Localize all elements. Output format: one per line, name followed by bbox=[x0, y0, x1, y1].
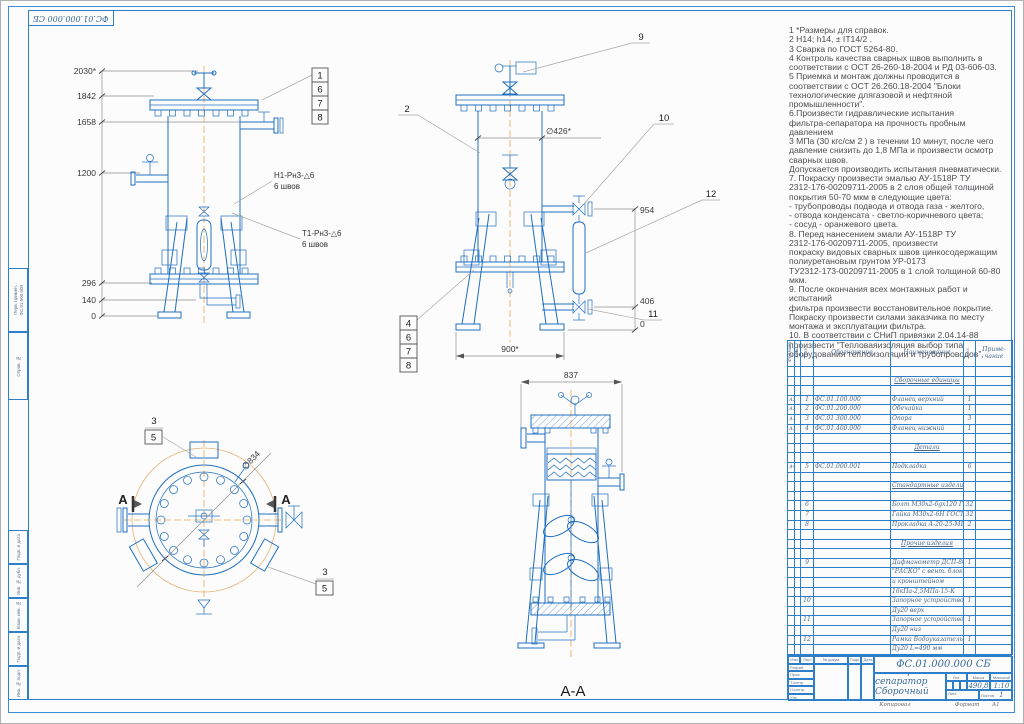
spec-cell: Болт М30х2-6gх120 ГОСТ 7796-70 bbox=[891, 501, 964, 511]
spec-cell bbox=[788, 482, 795, 492]
drawing-views: 2030* 1842 1658 1200 296 140 0 bbox=[28, 10, 780, 700]
format-value: А1 bbox=[992, 702, 1010, 708]
spec-cell bbox=[801, 386, 814, 396]
spec-row bbox=[788, 386, 1013, 396]
spec-cell bbox=[801, 530, 814, 540]
weld-t1-sub: 6 швов bbox=[302, 240, 328, 249]
tb-drawing-name: Фильтр-сепаратор Сборочный чертеж bbox=[874, 673, 946, 701]
spec-cell bbox=[814, 453, 891, 463]
spec-cell bbox=[814, 530, 891, 540]
frame-cell-vzam-inv: Взам. инв. № bbox=[8, 598, 28, 632]
spec-table-body: Сборочные единицыА31ФС.01.100.000Фланец … bbox=[788, 367, 1013, 655]
spec-row: "РАСКО" с вент. блоком bbox=[788, 568, 1013, 578]
spec-cell bbox=[976, 395, 1013, 405]
spec-cell bbox=[801, 645, 814, 655]
spec-cell bbox=[976, 635, 1013, 645]
spec-cell bbox=[964, 606, 976, 616]
callout-12: 12 bbox=[706, 189, 717, 200]
spec-cell bbox=[976, 597, 1013, 607]
frame-cell-inv-dubl: Инв. № дубл. bbox=[8, 564, 28, 598]
tb-name-line1: Фильтр-сепаратор bbox=[875, 673, 945, 687]
spec-row: и кронштейном bbox=[788, 578, 1013, 588]
spec-row bbox=[788, 434, 1013, 444]
spec-cell: Прочие изделия bbox=[891, 539, 964, 549]
dim-2030: 2030* bbox=[74, 66, 97, 76]
spec-cell bbox=[788, 367, 795, 377]
spec-cell: А3 bbox=[788, 424, 795, 434]
tb-lit-label: Лит. bbox=[946, 673, 967, 681]
spec-section-row: Стандартные изделия bbox=[788, 482, 1013, 492]
spec-cell: 4 bbox=[801, 424, 814, 434]
dim-1200: 1200 bbox=[77, 168, 96, 178]
callout-8b: 8 bbox=[406, 361, 411, 372]
section-top-valve bbox=[559, 393, 592, 416]
dim-837-text: 837 bbox=[564, 370, 578, 380]
dim-954: 954 bbox=[640, 205, 654, 215]
section-marks: А А bbox=[118, 492, 291, 512]
tb-date-col bbox=[861, 664, 874, 702]
plan-bottom-fitting bbox=[196, 600, 212, 614]
callout-5a: 5 bbox=[151, 433, 156, 444]
section-letter-right: А bbox=[281, 492, 291, 507]
frame-cell-sprav: Справ. № bbox=[8, 332, 28, 400]
spec-cell: "РАСКО" с вент. блоком bbox=[891, 568, 964, 578]
front-dimension-chain: 2030* 1842 1658 1200 296 140 0 bbox=[74, 66, 272, 321]
tb-sign-col bbox=[848, 664, 861, 702]
section-view: 837 bbox=[518, 370, 624, 700]
plan-callout-35-topleft: 3 5 bbox=[145, 416, 196, 457]
spec-cell bbox=[976, 472, 1013, 482]
spec-cell bbox=[801, 568, 814, 578]
spec-cell: Гайка М30х2-6Н ГОСТ 15521-70 bbox=[891, 510, 964, 520]
spec-header-designation: Обозначение bbox=[814, 341, 891, 367]
spec-cell bbox=[788, 376, 795, 386]
spec-cell bbox=[801, 482, 814, 492]
spec-cell bbox=[801, 434, 814, 444]
tb-doc-col bbox=[814, 664, 848, 702]
tb-razrab: Разраб. bbox=[788, 664, 814, 672]
frame-cell-podp-data-2: Подп. и дата bbox=[8, 632, 28, 666]
spec-cell: 1 bbox=[964, 558, 976, 568]
spec-header-format: Формат bbox=[788, 341, 795, 367]
spec-section-row: Прочие изделия bbox=[788, 539, 1013, 549]
spec-cell: Обечайка bbox=[891, 405, 964, 415]
front-callouts: 1 6 7 8 bbox=[262, 68, 328, 124]
frame-cell-label: Инв. № подл. bbox=[16, 669, 21, 697]
spec-cell bbox=[891, 453, 964, 463]
top-control-valve bbox=[495, 62, 536, 95]
spec-cell bbox=[976, 501, 1013, 511]
tb-sheet-cell: Лист bbox=[946, 690, 979, 701]
spec-header-name: Наименование bbox=[891, 341, 964, 367]
spec-cell bbox=[964, 443, 976, 453]
side-callout-2: 2 bbox=[398, 104, 480, 153]
spec-cell bbox=[891, 434, 964, 444]
dim-406: 406 bbox=[640, 296, 654, 306]
bolt-row-top bbox=[155, 110, 248, 116]
spec-row bbox=[788, 491, 1013, 501]
spec-cell bbox=[788, 606, 795, 616]
tb-mass-label: Масса bbox=[967, 673, 990, 681]
spec-cell bbox=[976, 510, 1013, 520]
spec-row: Ду20 верх bbox=[788, 606, 1013, 616]
spec-cell bbox=[976, 434, 1013, 444]
dia-426-dimension: ∅426* bbox=[475, 126, 601, 141]
spec-cell: Дифманометр ДСП-80В bbox=[891, 558, 964, 568]
bolt-row-top bbox=[461, 105, 554, 111]
spec-cell: 3 bbox=[964, 414, 976, 424]
section-right-valve bbox=[598, 459, 624, 490]
level-gauge-assembly bbox=[542, 196, 592, 320]
spec-cell: 2 bbox=[964, 520, 976, 530]
spec-cell: ФС.01.200.000 bbox=[814, 405, 891, 415]
spec-cell bbox=[814, 635, 891, 645]
callout-2: 2 bbox=[404, 104, 409, 115]
spec-row: 12Рамка Водоуказательная 12нж10бк1 bbox=[788, 635, 1013, 645]
spec-cell: ФС.01.300.000 bbox=[814, 414, 891, 424]
tb-prov: Пров. bbox=[788, 671, 814, 679]
spec-cell bbox=[976, 645, 1013, 655]
spec-cell bbox=[964, 386, 976, 396]
spec-cell bbox=[976, 578, 1013, 588]
spec-row bbox=[788, 472, 1013, 482]
spec-cell bbox=[788, 558, 795, 568]
spec-cell: 8 bbox=[801, 520, 814, 530]
side-callout-9: 9 bbox=[523, 32, 650, 72]
spec-row: Ду20 низ bbox=[788, 626, 1013, 636]
spec-cell bbox=[976, 443, 1013, 453]
dim-296: 296 bbox=[82, 278, 96, 288]
spec-cell bbox=[788, 539, 795, 549]
callout-3a: 3 bbox=[151, 416, 156, 427]
tb-lit-cell-2 bbox=[953, 681, 960, 690]
spec-cell bbox=[801, 453, 814, 463]
dim-1842: 1842 bbox=[77, 91, 96, 101]
spec-cell bbox=[964, 482, 976, 492]
callout-8: 8 bbox=[317, 113, 322, 124]
spec-cell: Детали bbox=[891, 443, 964, 453]
spec-cell bbox=[814, 386, 891, 396]
spec-cell bbox=[976, 405, 1013, 415]
frame-cell-label: Инв. № дубл. bbox=[16, 567, 21, 595]
spec-cell: Ду20 низ bbox=[891, 626, 964, 636]
spec-cell bbox=[788, 626, 795, 636]
spec-cell: А3 bbox=[788, 395, 795, 405]
plan-right-valve bbox=[259, 506, 302, 532]
spec-cell: Рамка Водоуказательная 12нж10бк bbox=[891, 635, 964, 645]
weld-callout-h1: Н1-Рн3-△6 6 швов bbox=[234, 171, 315, 204]
weld-t1-text: Т1-Рн3-△6 bbox=[302, 229, 342, 238]
spec-cell: Подкладка bbox=[891, 462, 964, 472]
spec-cell bbox=[788, 472, 795, 482]
spec-cell: Опора bbox=[891, 414, 964, 424]
callout-10: 10 bbox=[659, 113, 670, 124]
tb-podp: Подп. bbox=[848, 656, 861, 664]
spec-cell bbox=[976, 530, 1013, 540]
spec-cell bbox=[814, 510, 891, 520]
spec-row: А33ФС.01.300.000Опора3 bbox=[788, 414, 1013, 424]
spec-cell bbox=[976, 626, 1013, 636]
frame-cell-label: Взам. инв. № bbox=[16, 601, 21, 629]
spec-cell: Ду20 L=490 мм bbox=[891, 645, 964, 655]
spec-cell bbox=[788, 635, 795, 645]
frame-cell-podp-data-1: Подп. и дата bbox=[8, 530, 28, 564]
spec-cell: Запорное устройство 12нж10бк bbox=[891, 616, 964, 626]
spec-cell: 10 bbox=[801, 597, 814, 607]
side-elevation-view: ∅426* bbox=[398, 32, 720, 372]
spec-header-row: Формат Зона Поз. Обозначение Наименовани… bbox=[788, 341, 1013, 367]
section-legs bbox=[518, 494, 620, 648]
spec-cell bbox=[891, 530, 964, 540]
spec-cell bbox=[814, 549, 891, 559]
spec-cell bbox=[976, 568, 1013, 578]
callout-3b: 3 bbox=[322, 567, 327, 578]
dim-zero: 0 bbox=[640, 319, 645, 329]
spec-cell bbox=[801, 367, 814, 377]
spec-cell bbox=[891, 491, 964, 501]
spec-cell: Сборочные единицы bbox=[891, 376, 964, 386]
tb-lit-cell-1 bbox=[946, 681, 953, 690]
spec-cell: 1 bbox=[964, 405, 976, 415]
spec-cell bbox=[976, 424, 1013, 434]
spec-cell bbox=[814, 376, 891, 386]
spec-cell bbox=[801, 606, 814, 616]
spec-cell bbox=[976, 367, 1013, 377]
callout-7: 7 bbox=[317, 99, 322, 110]
callout-4: 4 bbox=[406, 319, 411, 330]
frame-cell-inv-podl: Инв. № подл. bbox=[8, 666, 28, 700]
side-callout-12: 12 bbox=[586, 189, 720, 253]
tb-data: Дата bbox=[861, 656, 874, 664]
side-callout-11: 11 bbox=[588, 309, 662, 320]
spec-cell bbox=[976, 606, 1013, 616]
spec-cell: 9 bbox=[801, 558, 814, 568]
plan-callout-35-bottomright: 3 5 bbox=[268, 567, 334, 595]
spec-cell bbox=[964, 376, 976, 386]
spec-cell bbox=[788, 491, 795, 501]
spec-cell bbox=[788, 453, 795, 463]
spec-cell bbox=[814, 472, 891, 482]
spec-cell: 5 bbox=[801, 462, 814, 472]
tb-mass-value: 490,8 bbox=[967, 681, 990, 690]
spec-cell: Фланец нижний bbox=[891, 424, 964, 434]
spec-cell: 1 bbox=[964, 616, 976, 626]
format-label: Формат bbox=[955, 702, 989, 708]
spec-cell: 2 bbox=[801, 405, 814, 415]
spec-cell: ФС.01.000.001 bbox=[814, 462, 891, 472]
spec-cell bbox=[976, 453, 1013, 463]
frame-cell-perv-primen: Перв. примен. ФС.01.000.000 bbox=[8, 268, 28, 332]
spec-cell bbox=[964, 434, 976, 444]
top-valve bbox=[192, 71, 216, 100]
spec-cell bbox=[801, 626, 814, 636]
spec-row: 16кПа-2,5МПа-15-К bbox=[788, 587, 1013, 597]
spec-header-note: Приме-чание bbox=[976, 341, 1013, 367]
spec-cell bbox=[788, 645, 795, 655]
spec-cell bbox=[891, 472, 964, 482]
dim-0: 0 bbox=[91, 311, 96, 321]
spec-cell bbox=[976, 482, 1013, 492]
dim-140: 140 bbox=[82, 295, 96, 305]
spec-cell: 3 bbox=[801, 414, 814, 424]
spec-cell bbox=[788, 510, 795, 520]
spec-row: 9Дифманометр ДСП-80В1 bbox=[788, 558, 1013, 568]
filter-element bbox=[547, 448, 596, 480]
spec-cell: ФС.01.400.000 bbox=[814, 424, 891, 434]
tb-docnum: № докум. bbox=[814, 656, 848, 664]
spec-row: А31ФС.01.100.000Фланец верхний1 bbox=[788, 395, 1013, 405]
spec-cell bbox=[976, 520, 1013, 530]
section-label: А-А bbox=[560, 683, 585, 700]
spec-cell: Стандартные изделия bbox=[891, 482, 964, 492]
spec-cell: Фланец верхний bbox=[891, 395, 964, 405]
spec-cell bbox=[788, 386, 795, 396]
spec-cell bbox=[964, 367, 976, 377]
spec-cell bbox=[976, 386, 1013, 396]
right-nozzle bbox=[240, 112, 283, 133]
spec-cell bbox=[964, 472, 976, 482]
spec-row: А34ФС.01.400.000Фланец нижний1 bbox=[788, 424, 1013, 434]
weld-callout-t1: Т1-Рн3-△6 6 швов bbox=[232, 213, 342, 249]
spec-cell bbox=[788, 520, 795, 530]
spec-cell bbox=[814, 539, 891, 549]
copied-label: Копировал bbox=[845, 702, 945, 708]
spec-cell bbox=[801, 491, 814, 501]
front-elevation-view: 2030* 1842 1658 1200 296 140 0 bbox=[74, 66, 342, 324]
spec-cell: 1 bbox=[964, 597, 976, 607]
section-drain bbox=[532, 615, 575, 644]
spec-cell bbox=[964, 568, 976, 578]
spec-cell bbox=[801, 578, 814, 588]
callout-5b: 5 bbox=[322, 584, 327, 595]
spec-cell bbox=[814, 578, 891, 588]
spec-cell bbox=[801, 443, 814, 453]
spec-cell bbox=[964, 549, 976, 559]
spec-section-row: Детали bbox=[788, 443, 1013, 453]
frame-cell-ref: ФС.01.000.000 bbox=[19, 285, 24, 315]
spec-cell bbox=[976, 616, 1013, 626]
spec-row: 11Запорное устройство 12нж10бк1 bbox=[788, 616, 1013, 626]
spec-cell bbox=[814, 367, 891, 377]
spec-cell: 1 bbox=[964, 424, 976, 434]
technical-notes: 1 *Размеры для справок. 2 Н14; h14, ± IT… bbox=[789, 26, 1011, 340]
spec-row: 6Болт М30х2-6gх120 ГОСТ 7796-7032 bbox=[788, 501, 1013, 511]
spec-cell: 1 bbox=[801, 395, 814, 405]
spec-cell bbox=[814, 626, 891, 636]
spec-cell: и кронштейном bbox=[891, 578, 964, 588]
tb-sheets-value: 1 bbox=[995, 691, 1003, 699]
spec-cell: 6 bbox=[801, 501, 814, 511]
spec-row bbox=[788, 549, 1013, 559]
spec-cell bbox=[976, 587, 1013, 597]
spec-cell: А3 bbox=[788, 414, 795, 424]
dim-dia426: ∅426* bbox=[546, 126, 572, 136]
spec-cell bbox=[964, 626, 976, 636]
spec-section-row: Сборочные единицы bbox=[788, 376, 1013, 386]
spec-cell bbox=[976, 558, 1013, 568]
spec-row bbox=[788, 367, 1013, 377]
spec-row: А45ФС.01.000.001Подкладка6 bbox=[788, 462, 1013, 472]
tb-tkontr: Т.контр. bbox=[788, 679, 814, 687]
tb-izm: Изм. bbox=[788, 656, 800, 664]
spec-cell bbox=[891, 549, 964, 559]
tb-name-line2: Сборочный чертеж bbox=[875, 687, 945, 701]
callout-11: 11 bbox=[648, 309, 658, 320]
title-block: Изм. Лист № докум. Подп. Дата Разраб. Пр… bbox=[787, 655, 1012, 700]
spec-cell bbox=[788, 568, 795, 578]
spec-cell bbox=[976, 491, 1013, 501]
spec-cell: 1 bbox=[964, 395, 976, 405]
dim-1658: 1658 bbox=[77, 117, 96, 127]
spec-cell bbox=[801, 587, 814, 597]
spec-cell bbox=[788, 501, 795, 511]
callout-9: 9 bbox=[638, 32, 643, 43]
tb-doc-number: ФС.01.000.000 СБ bbox=[874, 656, 1013, 673]
section-letter-left: А bbox=[118, 492, 128, 507]
spec-cell bbox=[814, 501, 891, 511]
spec-cell: 11 bbox=[801, 616, 814, 626]
front-vessel bbox=[131, 66, 283, 324]
spec-cell bbox=[788, 443, 795, 453]
spec-header-qty: Кол. bbox=[964, 341, 976, 367]
spec-cell: ФС.01.100.000 bbox=[814, 395, 891, 405]
callout-6b: 6 bbox=[406, 333, 411, 344]
spec-cell: А3 bbox=[788, 405, 795, 415]
tb-list: Лист bbox=[800, 656, 814, 664]
spec-row: Ду20 L=490 мм bbox=[788, 645, 1013, 655]
spec-cell bbox=[801, 539, 814, 549]
dim-dia834: ∅834 bbox=[240, 449, 263, 472]
spec-cell bbox=[814, 558, 891, 568]
callout-6: 6 bbox=[317, 85, 322, 96]
tb-sheets-cell: Листов 1 bbox=[979, 690, 1013, 701]
spec-cell: 32 bbox=[964, 510, 976, 520]
spec-cell bbox=[964, 645, 976, 655]
spec-cell bbox=[814, 606, 891, 616]
spec-cell bbox=[964, 587, 976, 597]
spec-cell bbox=[788, 616, 795, 626]
frame-cell-label: Перв. примен. bbox=[13, 285, 18, 315]
spec-row bbox=[788, 453, 1013, 463]
callout-7b: 7 bbox=[406, 347, 411, 358]
spec-cell bbox=[788, 434, 795, 444]
spec-cell bbox=[814, 491, 891, 501]
spec-cell bbox=[788, 587, 795, 597]
spec-cell bbox=[788, 549, 795, 559]
spec-cell bbox=[814, 616, 891, 626]
frame-cell-label: Подп. и дата bbox=[16, 636, 21, 663]
spec-cell bbox=[801, 376, 814, 386]
spec-cell: 16кПа-2,5МПа-15-К bbox=[891, 587, 964, 597]
tb-utv: Утв. bbox=[788, 694, 814, 702]
spec-cell bbox=[964, 453, 976, 463]
spec-cell: 32 bbox=[964, 501, 976, 511]
weld-h1-text: Н1-Рн3-△6 bbox=[274, 171, 315, 180]
dim-900-text: 900* bbox=[501, 344, 519, 354]
spec-row: 10Запорное устройство 12нж10бк1 bbox=[788, 597, 1013, 607]
spec-cell bbox=[814, 597, 891, 607]
bolt-row-bottom bbox=[461, 256, 554, 262]
spec-cell bbox=[976, 462, 1013, 472]
spec-cell bbox=[891, 386, 964, 396]
bolt-row bbox=[533, 428, 608, 433]
tb-scale-value: 1:10 bbox=[990, 681, 1013, 690]
spec-cell bbox=[801, 549, 814, 559]
spec-cell bbox=[814, 645, 891, 655]
frame-cell-label: Справ. № bbox=[16, 356, 21, 377]
frame-cell-label: Подп. и дата bbox=[16, 534, 21, 561]
spec-cell bbox=[976, 376, 1013, 386]
